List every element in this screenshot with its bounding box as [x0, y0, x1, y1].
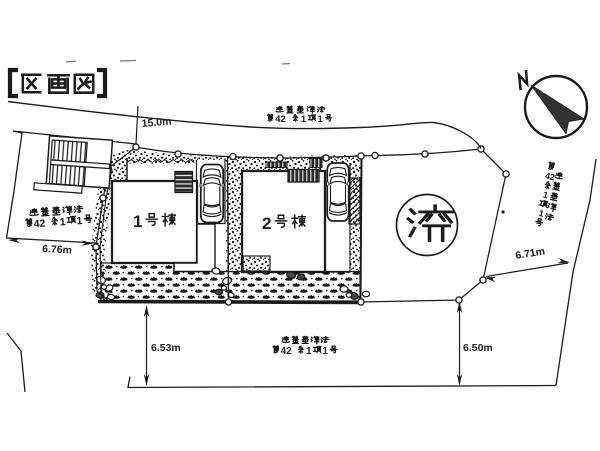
svg-text:42: 42: [275, 114, 286, 125]
svg-text:42: 42: [281, 346, 293, 357]
svg-text:1: 1: [306, 346, 312, 357]
svg-text:1: 1: [318, 114, 324, 125]
svg-text:2: 2: [262, 214, 271, 233]
svg-text:1: 1: [322, 346, 328, 357]
svg-text:6.53m: 6.53m: [151, 342, 181, 354]
svg-text:1: 1: [59, 216, 66, 228]
svg-text:42: 42: [33, 218, 46, 231]
svg-text:6.50m: 6.50m: [463, 342, 493, 354]
svg-text:1: 1: [301, 114, 307, 125]
svg-text:1: 1: [133, 212, 142, 231]
svg-text:6.76m: 6.76m: [42, 243, 72, 257]
svg-text:1: 1: [76, 215, 83, 227]
